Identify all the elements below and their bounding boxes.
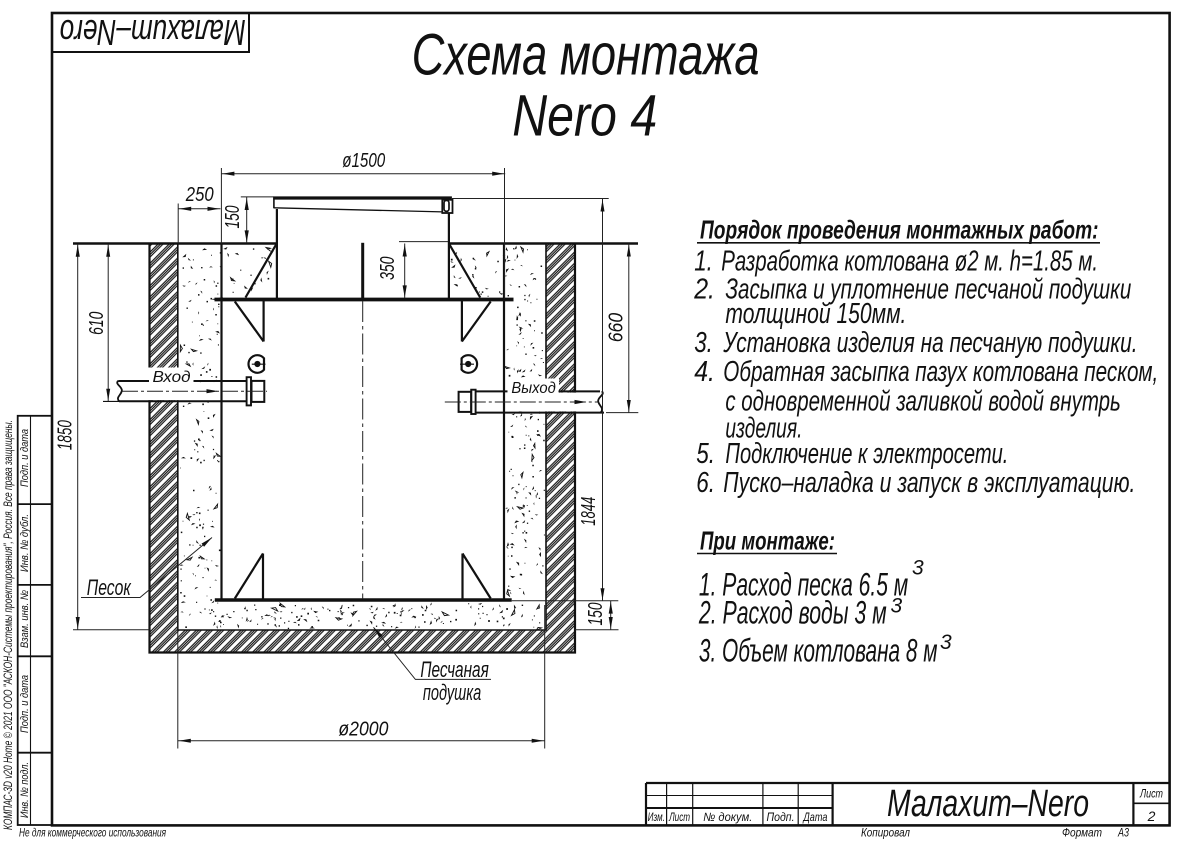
svg-text:6.: 6. (696, 467, 715, 499)
svg-text:Песок: Песок (87, 575, 132, 600)
svg-text:Изм.: Изм. (648, 810, 665, 824)
svg-text:3: 3 (940, 631, 952, 654)
svg-text:660: 660 (606, 313, 628, 343)
svg-text:КОМПАС-3D v20 Home © 2021 ООО: КОМПАС-3D v20 Home © 2021 ООО "АСКОН-Сис… (3, 420, 15, 830)
svg-text:3: 3 (912, 557, 924, 580)
svg-text:250: 250 (185, 184, 214, 206)
svg-text:Порядок проведения монтажных р: Порядок проведения монтажных работ: (700, 215, 1099, 245)
svg-text:Подп. и дата: Подп. и дата (19, 675, 31, 733)
svg-text:Схема монтажа: Схема монтажа (412, 22, 760, 87)
svg-text:Малахит–Nero: Малахит–Nero (60, 12, 246, 53)
svg-text:Дата: Дата (802, 810, 828, 824)
svg-text:подушка: подушка (423, 680, 481, 705)
svg-text:Подп. и дата: Подп. и дата (19, 429, 31, 487)
svg-text:2. Расход воды 3 м: 2. Расход воды 3 м (698, 595, 886, 631)
svg-text:610: 610 (86, 312, 108, 335)
svg-text:ø1500: ø1500 (342, 150, 385, 172)
svg-text:2.: 2. (693, 273, 715, 305)
svg-text:Песчаная: Песчаная (420, 657, 489, 682)
svg-text:3.: 3. (694, 327, 713, 359)
svg-text:Выход: Выход (511, 380, 556, 397)
svg-text:Лист: Лист (668, 810, 690, 824)
svg-text:Установка изделия на песчаную: Установка изделия на песчаную подушки. (723, 327, 1138, 359)
svg-text:А3: А3 (1117, 826, 1129, 840)
svg-text:Малахит–Nero: Малахит–Nero (887, 783, 1089, 825)
svg-text:Подп.: Подп. (767, 810, 795, 824)
svg-text:150: 150 (222, 206, 244, 229)
svg-text:Формат: Формат (1062, 826, 1102, 840)
svg-text:Лист: Лист (1139, 789, 1163, 801)
svg-text:Nero 4: Nero 4 (512, 83, 657, 148)
svg-text:2: 2 (1147, 808, 1156, 824)
svg-text:350: 350 (377, 257, 399, 281)
svg-text:1844: 1844 (578, 497, 600, 526)
svg-text:Не для коммерческого использов: Не для коммерческого использования (19, 826, 166, 840)
svg-text:№ докум.: № докум. (703, 810, 752, 824)
svg-text:5.: 5. (696, 438, 715, 470)
svg-text:ø2000: ø2000 (338, 719, 388, 741)
svg-text:3. Объем котлована 8 м: 3. Объем котлована 8 м (699, 633, 938, 669)
svg-text:Инв. № дубл.: Инв. № дубл. (19, 514, 31, 572)
svg-text:Пуско–наладка и запуск в экспл: Пуско–наладка и запуск в эксплуатацию. (723, 467, 1135, 499)
svg-text:1850: 1850 (55, 420, 77, 450)
svg-text:4.: 4. (694, 356, 715, 388)
svg-text:Взам. инв. №: Взам. инв. № (19, 590, 31, 648)
svg-text:3: 3 (891, 595, 903, 618)
svg-text:Обратная засыпка пазух котлова: Обратная засыпка пазух котлована песком, (723, 356, 1158, 388)
svg-text:Вход: Вход (153, 369, 191, 386)
svg-text:150: 150 (585, 603, 607, 626)
svg-text:При монтаже:: При монтаже: (700, 526, 835, 556)
svg-text:толщиной 150мм.: толщиной 150мм. (725, 298, 906, 330)
svg-text:Подключение к электросети.: Подключение к электросети. (725, 438, 1008, 470)
svg-text:Копировал: Копировал (861, 826, 910, 840)
svg-text:Инв. № подл.: Инв. № подл. (19, 762, 31, 818)
